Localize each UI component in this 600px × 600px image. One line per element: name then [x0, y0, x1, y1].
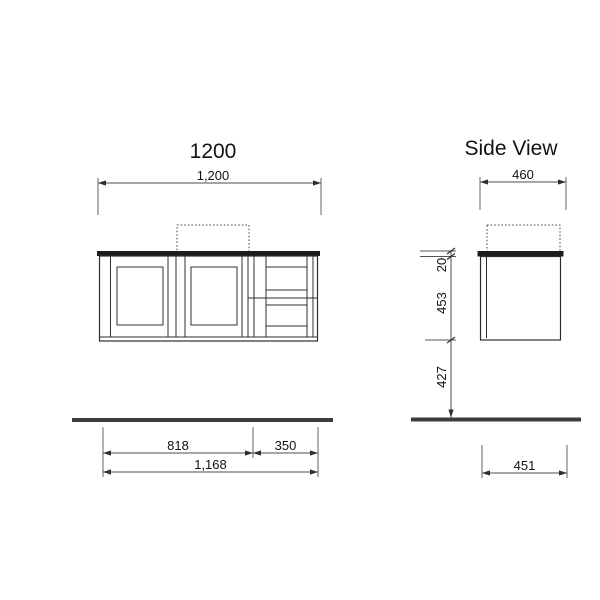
front-overall-width-label: 1,200	[197, 168, 230, 183]
arrowhead-right-icon	[558, 179, 566, 184]
extension-lines	[98, 178, 321, 215]
counter-thickness-label: 20	[434, 258, 449, 272]
side-depth-dimension: 460	[480, 167, 566, 210]
arrowhead-left-icon	[103, 450, 111, 455]
countertop-front	[97, 251, 320, 256]
door-middle-panel	[191, 267, 237, 325]
arrowhead-left-icon	[480, 179, 488, 184]
front-view: 1200 1,200	[72, 140, 333, 477]
countertop-side	[478, 251, 564, 257]
front-view-title: 1200	[190, 140, 237, 163]
sink-cutout-outline	[177, 225, 249, 252]
total-width-label: 1,168	[194, 457, 227, 472]
arrowhead-right-icon	[310, 469, 318, 474]
arrowhead-right-icon	[559, 470, 567, 475]
floor-line-front	[72, 418, 333, 422]
cabinet-outline-side	[481, 257, 561, 341]
technical-drawing: 1200 1,200	[0, 0, 600, 600]
arrowhead-down-icon	[448, 410, 453, 418]
arrowhead-right-icon	[313, 180, 321, 185]
drawer-panel-lines	[266, 267, 307, 326]
door-left-panel	[117, 267, 163, 325]
arrowhead-left-icon	[98, 180, 106, 185]
front-bottom-dimension-row2: 1,168	[103, 457, 318, 475]
arrowhead-right-icon	[310, 450, 318, 455]
drawers-width-label: 350	[275, 438, 297, 453]
sink-cutout-outline-side	[487, 225, 560, 252]
doors-width-label: 818	[167, 438, 189, 453]
side-depth-label: 460	[512, 167, 534, 182]
arrowhead-mid-left-icon	[253, 450, 261, 455]
side-view: Side View 460 20 453 427	[411, 137, 581, 478]
cabinet-height-label: 453	[434, 292, 449, 314]
side-vertical-dimensions: 20 453 427	[420, 248, 456, 418]
front-overall-width-dimension: 1,200	[98, 168, 321, 215]
arrowhead-left-icon	[103, 469, 111, 474]
arrowhead-mid-right-icon	[245, 450, 253, 455]
drawing-canvas: 1200 1,200	[0, 0, 600, 600]
side-view-title: Side View	[464, 137, 558, 160]
arrowhead-left-icon	[482, 470, 490, 475]
side-bottom-dimension: 451	[482, 445, 567, 478]
floor-clearance-label: 427	[434, 366, 449, 388]
floor-line-side	[411, 418, 581, 422]
bottom-depth-label: 451	[514, 458, 536, 473]
